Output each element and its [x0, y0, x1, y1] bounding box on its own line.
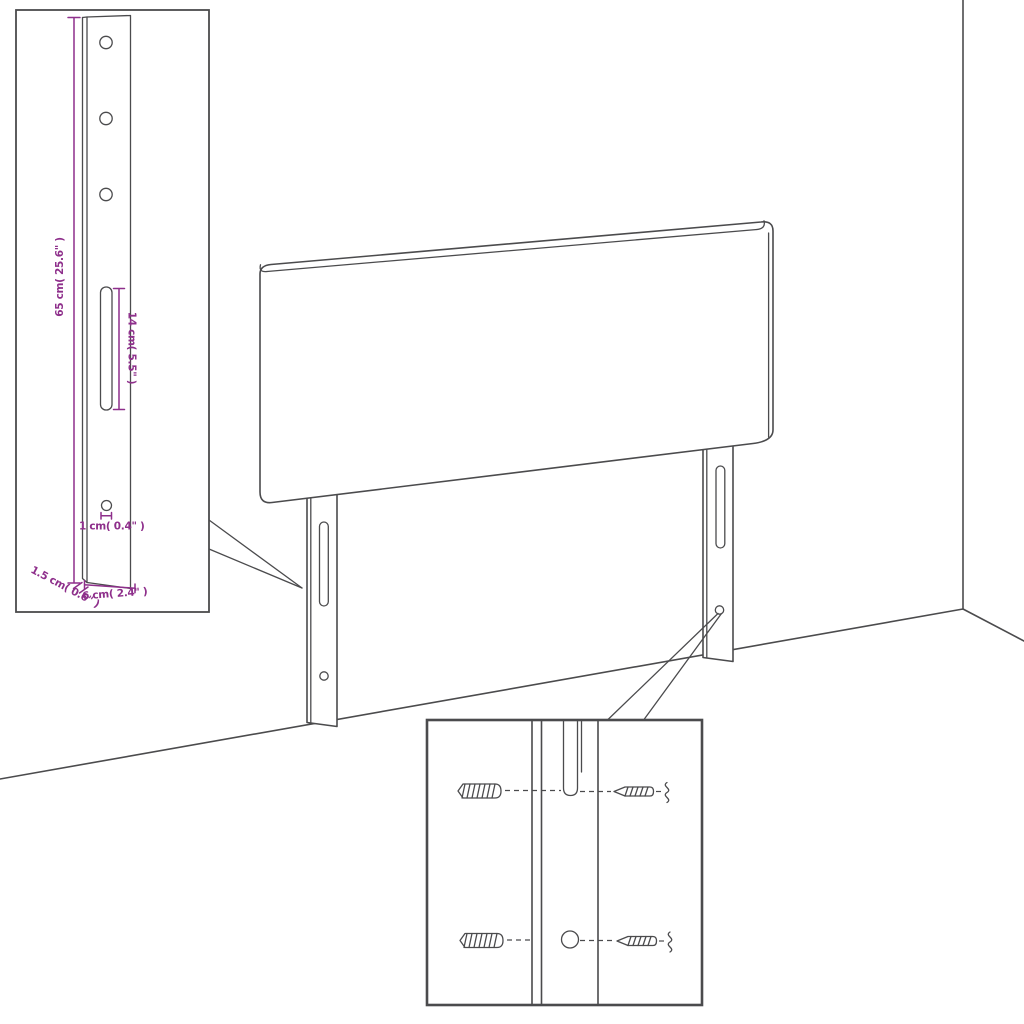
bracket-detail-inset: 65 cm( 25.6" ) 14 cm( 5.5" ) 1 cm( 0.4" … [16, 10, 209, 612]
dimension-hole-label: 1 cm( 0.4" ) [79, 521, 145, 533]
mounting-detail-inset [427, 720, 702, 1005]
headboard-leg-right [703, 439, 733, 662]
diagram-canvas: 65 cm( 25.6" ) 14 cm( 5.5" ) 1 cm( 0.4" … [0, 0, 1024, 1024]
headboard-leg-left [307, 487, 337, 727]
dimension-height-label: 65 cm( 25.6" ) [54, 237, 66, 317]
inset-border [427, 720, 702, 1005]
headboard-panel [260, 221, 773, 503]
floor-edge-right [963, 609, 1024, 641]
dimension-slot-label: 14 cm( 5.5" ) [126, 312, 138, 385]
headboard-assembly-diagram: 65 cm( 25.6" ) 14 cm( 5.5" ) 1 cm( 0.4" … [0, 0, 1024, 1024]
callout-bracket-inset [209, 520, 302, 588]
